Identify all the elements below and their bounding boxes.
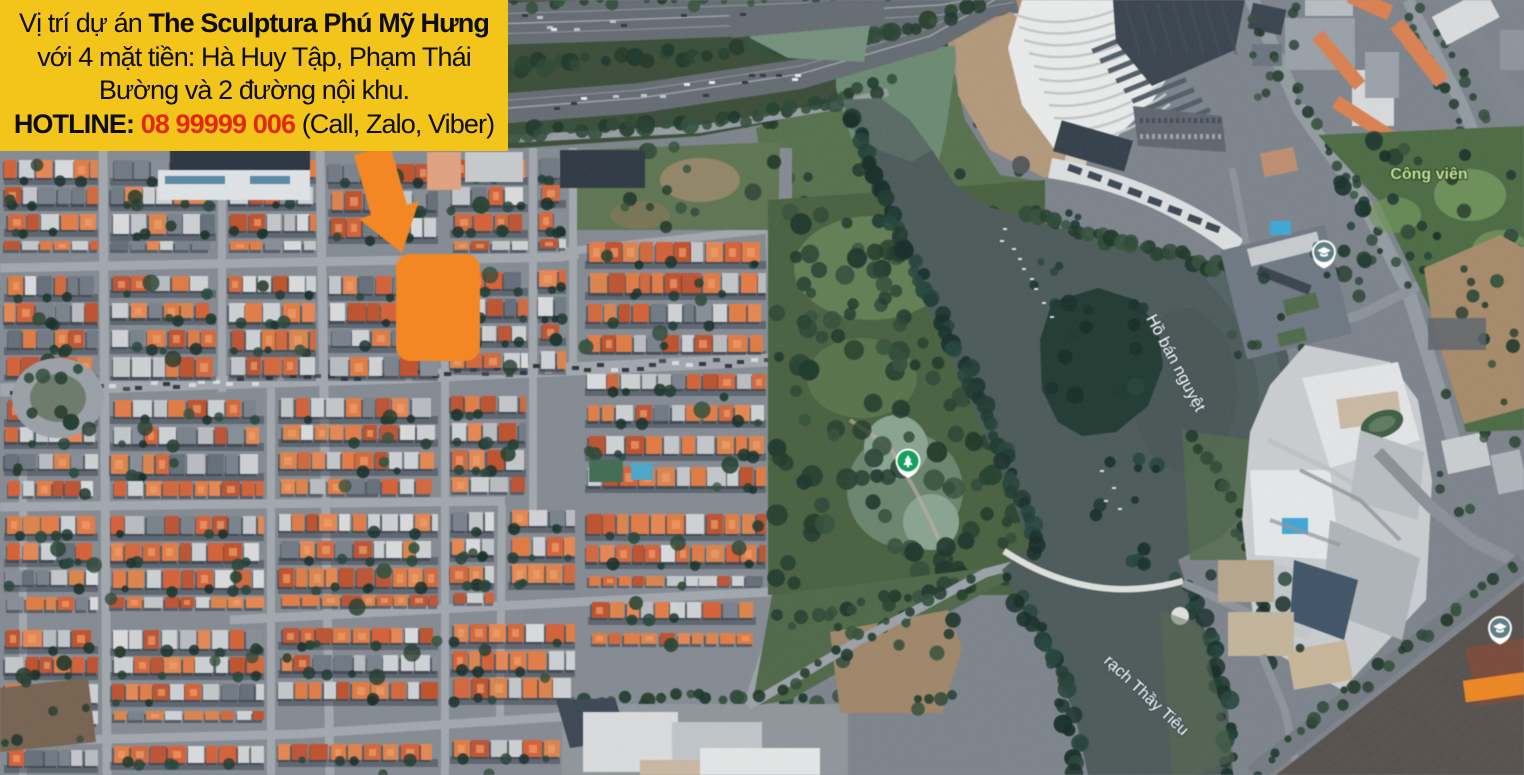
svg-text:Công viên: Công viên (1390, 166, 1467, 183)
